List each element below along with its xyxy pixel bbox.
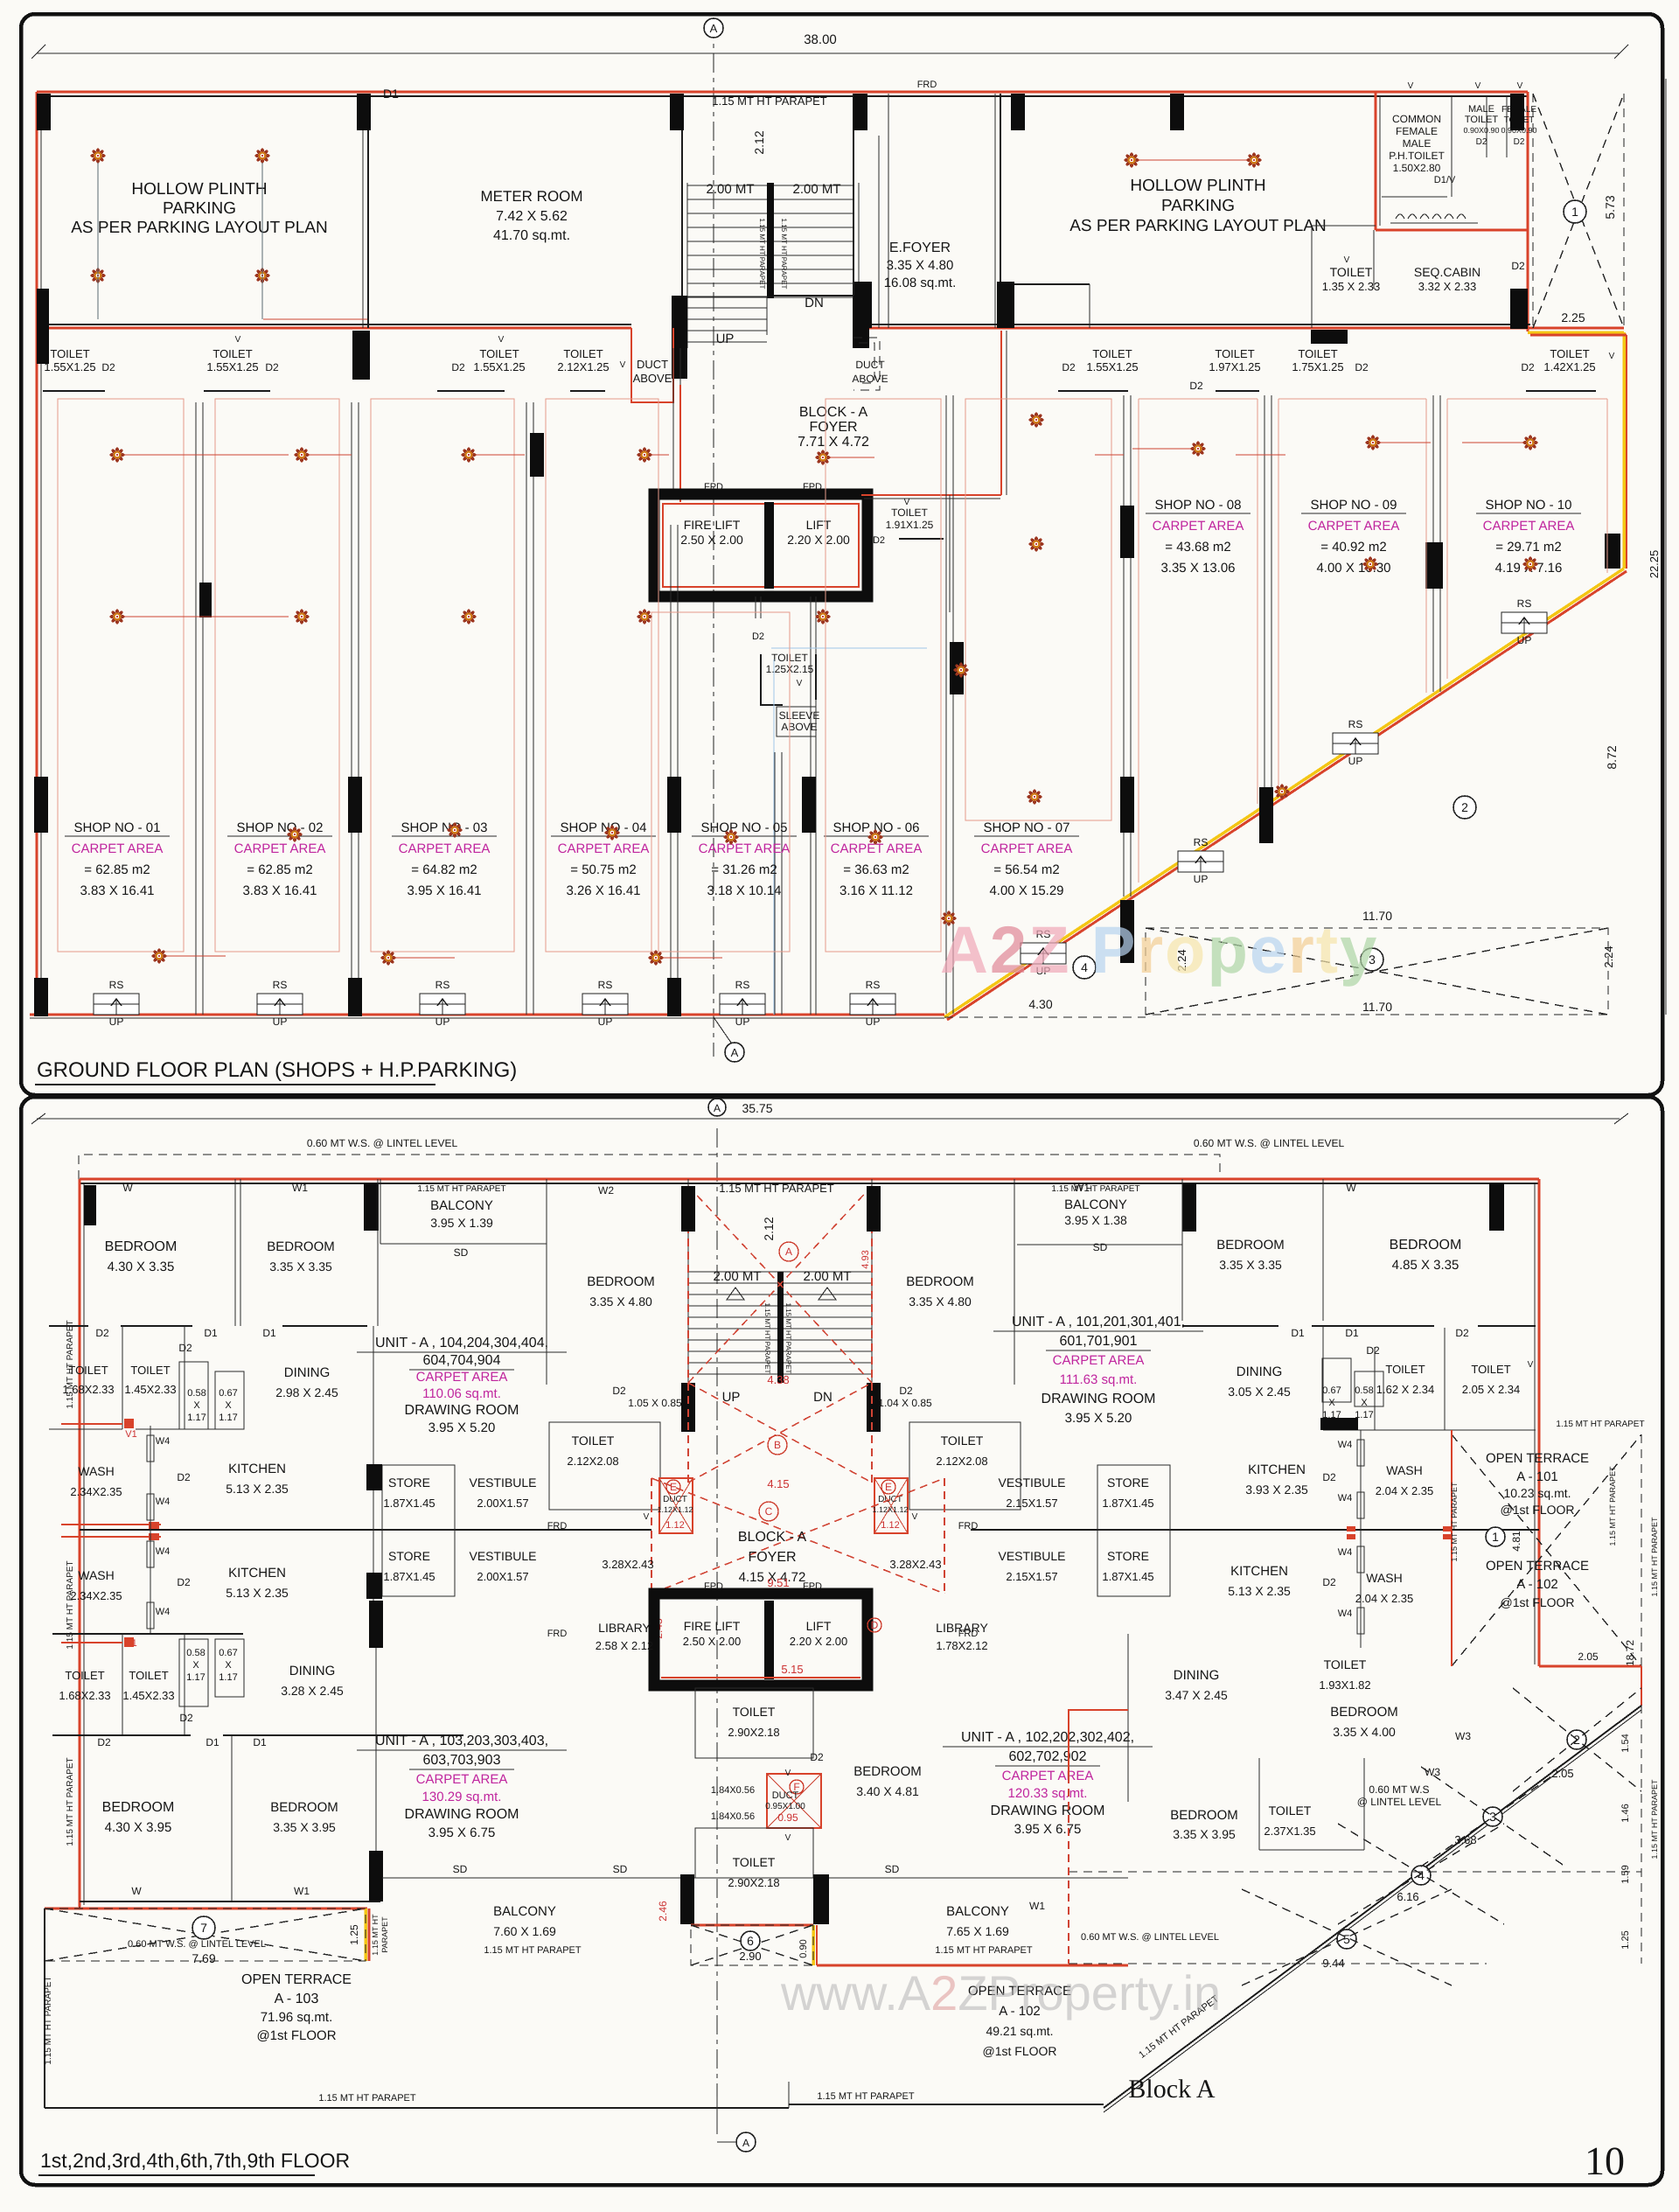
- svg-text:3.35 X 3.35: 3.35 X 3.35: [269, 1260, 332, 1273]
- svg-text:V: V: [1609, 352, 1615, 361]
- svg-text:2.20 X 2.00: 2.20 X 2.00: [787, 533, 850, 547]
- svg-text:1.15 MT HT PARAPET: 1.15 MT HT PARAPET: [712, 94, 827, 108]
- svg-text:D2: D2: [97, 1736, 111, 1748]
- svg-text:W: W: [1346, 1182, 1356, 1194]
- svg-text:AS PER PARKING LAYOUT PLAN: AS PER PARKING LAYOUT PLAN: [71, 219, 328, 237]
- svg-text:3.28X2.43: 3.28X2.43: [889, 1558, 941, 1571]
- svg-text:0.58: 0.58: [187, 1388, 206, 1399]
- svg-text:2.12: 2.12: [762, 1217, 776, 1240]
- svg-text:1.17: 1.17: [186, 1672, 205, 1683]
- svg-text:W2: W2: [598, 1184, 614, 1197]
- svg-text:W1: W1: [292, 1182, 308, 1194]
- svg-text:SLEEVE: SLEEVE: [779, 709, 820, 722]
- svg-text:V: V: [620, 360, 626, 370]
- svg-text:3.32 X 2.33: 3.32 X 2.33: [1418, 280, 1477, 293]
- svg-text:BALCONY: BALCONY: [430, 1198, 493, 1213]
- svg-text:RS: RS: [1194, 836, 1209, 848]
- svg-text:D1: D1: [262, 1327, 276, 1339]
- svg-text:2.24: 2.24: [1602, 946, 1615, 967]
- svg-text:2.00 MT: 2.00 MT: [792, 182, 840, 197]
- svg-text:7: 7: [200, 1921, 207, 1935]
- svg-text:SHOP NO - 09: SHOP NO - 09: [1311, 498, 1397, 513]
- svg-text:FPD: FPD: [704, 1581, 723, 1592]
- svg-text:2.34X2.35: 2.34X2.35: [70, 1589, 122, 1602]
- svg-text:V: V: [235, 335, 241, 345]
- svg-text:2.04 X 2.35: 2.04 X 2.35: [1376, 1484, 1434, 1497]
- svg-text:MALE: MALE: [1468, 104, 1494, 115]
- svg-text:4.38: 4.38: [767, 1373, 789, 1386]
- svg-text:DRAWING ROOM: DRAWING ROOM: [405, 1807, 519, 1822]
- svg-text:2.00 MT: 2.00 MT: [713, 1269, 761, 1284]
- svg-text:SD: SD: [454, 1246, 469, 1259]
- svg-text:1.15 MT HT PARAPET: 1.15 MT HT PARAPET: [758, 219, 766, 290]
- svg-text:PARAPET: PARAPET: [380, 1916, 389, 1953]
- svg-text:7.42 X 5.62: 7.42 X 5.62: [496, 209, 568, 224]
- svg-text:DINING: DINING: [1237, 1364, 1283, 1379]
- svg-text:SHOP NO - 10: SHOP NO - 10: [1486, 498, 1572, 513]
- svg-text:D2: D2: [177, 1471, 191, 1483]
- svg-text:TOILET: TOILET: [1298, 347, 1337, 360]
- svg-text:1.68X2.33: 1.68X2.33: [59, 1689, 110, 1702]
- svg-text:0.60 MT W.S. @ LINTEL LEVEL: 0.60 MT W.S. @ LINTEL LEVEL: [1194, 1137, 1345, 1149]
- svg-text:0.67: 0.67: [219, 1388, 237, 1399]
- svg-text:TOILET: TOILET: [1269, 1804, 1312, 1818]
- svg-text:0.58: 0.58: [186, 1648, 205, 1658]
- svg-text:TOILET: TOILET: [1324, 1657, 1367, 1671]
- svg-text:TOILET: TOILET: [733, 1705, 776, 1719]
- svg-text:RS: RS: [866, 979, 881, 991]
- svg-text:X: X: [192, 1660, 199, 1671]
- svg-text:604,704,904: 604,704,904: [423, 1353, 501, 1368]
- svg-text:CARPET AREA: CARPET AREA: [399, 841, 491, 856]
- svg-text:7.65 X 1.69: 7.65 X 1.69: [946, 1924, 1009, 1938]
- svg-text:D2: D2: [899, 1385, 913, 1397]
- svg-text:@1st FLOOR: @1st FLOOR: [1500, 1503, 1574, 1517]
- svg-text:FEMALE: FEMALE: [1396, 125, 1438, 137]
- svg-text:SHOP NO - 01: SHOP NO - 01: [74, 820, 161, 835]
- svg-text:0.95X1.00: 0.95X1.00: [765, 1802, 805, 1811]
- svg-text:D2: D2: [873, 535, 885, 546]
- svg-text:FOYER: FOYER: [748, 1550, 796, 1565]
- svg-text:W3: W3: [1455, 1730, 1471, 1742]
- svg-text:3.35 X 13.06: 3.35 X 13.06: [1160, 561, 1235, 576]
- svg-text:METER ROOM: METER ROOM: [480, 188, 582, 205]
- svg-text:= 56.54 m2: = 56.54 m2: [993, 862, 1059, 877]
- svg-text:D2: D2: [752, 632, 764, 642]
- svg-text:1.91X1.25: 1.91X1.25: [886, 519, 934, 531]
- svg-text:D2: D2: [1455, 1327, 1469, 1339]
- svg-text:D1: D1: [1291, 1327, 1305, 1339]
- svg-text:1.59: 1.59: [1620, 1865, 1631, 1883]
- svg-text:KITCHEN: KITCHEN: [1230, 1564, 1288, 1579]
- svg-text:BEDROOM: BEDROOM: [906, 1274, 974, 1289]
- svg-text:A - 102: A - 102: [1516, 1577, 1558, 1592]
- svg-text:3.05 X 2.45: 3.05 X 2.45: [1228, 1385, 1291, 1399]
- svg-text:V: V: [1475, 81, 1481, 91]
- svg-text:1.45X2.33: 1.45X2.33: [124, 1383, 176, 1396]
- svg-text:130.29 sq.mt.: 130.29 sq.mt.: [422, 1790, 502, 1804]
- svg-text:1.15 MT HT PARAPET: 1.15 MT HT PARAPET: [484, 1945, 582, 1956]
- svg-text:AS PER PARKING LAYOUT PLAN: AS PER PARKING LAYOUT PLAN: [1069, 217, 1327, 235]
- svg-text:BEDROOM: BEDROOM: [853, 1764, 922, 1779]
- svg-text:V: V: [912, 1512, 918, 1522]
- svg-text:FOYER: FOYER: [809, 420, 857, 435]
- svg-text:2.98 X 2.45: 2.98 X 2.45: [275, 1385, 338, 1399]
- svg-text:D2: D2: [178, 1342, 192, 1354]
- svg-text:KITCHEN: KITCHEN: [228, 1462, 286, 1476]
- svg-text:OPEN TERRACE: OPEN TERRACE: [1486, 1559, 1589, 1574]
- svg-text:W4: W4: [156, 1546, 171, 1557]
- svg-text:D2: D2: [1511, 260, 1525, 272]
- svg-text:@ LINTEL LEVEL: @ LINTEL LEVEL: [1357, 1796, 1442, 1808]
- svg-text:1.15 MT HT PARAPET: 1.15 MT HT PARAPET: [66, 1560, 75, 1649]
- svg-text:10.23 sq.mt.: 10.23 sq.mt.: [1503, 1486, 1571, 1500]
- svg-text:D2: D2: [1062, 361, 1076, 373]
- svg-text:BEDROOM: BEDROOM: [1216, 1238, 1285, 1253]
- svg-text:TOILET: TOILET: [1092, 347, 1132, 360]
- svg-text:ABOVE: ABOVE: [781, 721, 817, 733]
- svg-text:DUCT: DUCT: [637, 358, 668, 371]
- svg-text:W4: W4: [1338, 1608, 1353, 1619]
- svg-text:1.15 MT HT PARAPET: 1.15 MT HT PARAPET: [784, 1303, 792, 1374]
- svg-text:W4: W4: [156, 1607, 171, 1617]
- svg-text:SHOP NO - 02: SHOP NO - 02: [237, 820, 324, 835]
- svg-text:2.50 X 2.00: 2.50 X 2.00: [680, 533, 743, 547]
- svg-text:RS: RS: [598, 979, 613, 991]
- svg-text:STORE: STORE: [1107, 1549, 1149, 1563]
- svg-text:BEDROOM: BEDROOM: [1390, 1238, 1462, 1253]
- svg-text:2.15X1.57: 2.15X1.57: [1006, 1570, 1057, 1583]
- svg-text:UP: UP: [866, 1015, 881, 1028]
- svg-text:1.12X1.12: 1.12X1.12: [872, 1505, 908, 1514]
- svg-text:1.15 MT HT PARAPET: 1.15 MT HT PARAPET: [1650, 1517, 1659, 1597]
- svg-text:2.12X2.08: 2.12X2.08: [936, 1455, 987, 1468]
- svg-text:1.54: 1.54: [1620, 1734, 1631, 1752]
- svg-text:B: B: [774, 1439, 781, 1451]
- svg-text:TOILET: TOILET: [1471, 1363, 1510, 1376]
- svg-text:CARPET AREA: CARPET AREA: [416, 1370, 508, 1385]
- svg-text:STORE: STORE: [388, 1476, 430, 1490]
- svg-text:1.15 MT HT PARAPET: 1.15 MT HT PARAPET: [1051, 1184, 1139, 1194]
- svg-text:= 29.71 m2: = 29.71 m2: [1495, 540, 1561, 555]
- svg-text:3.35 X 3.35: 3.35 X 3.35: [1219, 1258, 1282, 1272]
- svg-text:3.28X2.43: 3.28X2.43: [602, 1558, 653, 1571]
- svg-text:TOILET: TOILET: [212, 347, 252, 360]
- svg-text:1.15 MT HT PARAPET: 1.15 MT HT PARAPET: [817, 2091, 915, 2102]
- svg-text:0.90: 0.90: [798, 1939, 809, 1957]
- svg-text:TOILET: TOILET: [68, 1364, 108, 1377]
- svg-text:1.15 MT HT PARAPET: 1.15 MT HT PARAPET: [66, 1757, 75, 1846]
- svg-text:WASH: WASH: [1386, 1463, 1422, 1477]
- svg-text:DRAWING ROOM: DRAWING ROOM: [1042, 1392, 1156, 1406]
- svg-text:A - 103: A - 103: [275, 1992, 319, 2006]
- svg-text:22.25: 22.25: [1648, 550, 1661, 579]
- svg-text:@1st FLOOR: @1st FLOOR: [982, 2044, 1056, 2058]
- svg-text:DINING: DINING: [289, 1664, 336, 1678]
- svg-text:ABOVE: ABOVE: [852, 373, 888, 385]
- svg-text:CARPET AREA: CARPET AREA: [1002, 1769, 1094, 1783]
- svg-text:@1st FLOOR: @1st FLOOR: [1500, 1595, 1574, 1609]
- svg-text:1.15 MT HT PARAPET: 1.15 MT HT PARAPET: [417, 1184, 505, 1194]
- svg-text:D2: D2: [265, 361, 279, 373]
- svg-text:COMMON: COMMON: [1392, 113, 1441, 125]
- svg-text:HOLLOW PLINTH: HOLLOW PLINTH: [1130, 177, 1265, 195]
- svg-text:OPEN TERRACE: OPEN TERRACE: [241, 1972, 352, 1987]
- svg-text:1.15 MT HT PARAPET: 1.15 MT HT PARAPET: [719, 1182, 834, 1195]
- svg-text:W: W: [122, 1182, 133, 1194]
- svg-text:18.72: 18.72: [1624, 1640, 1636, 1666]
- svg-text:2.15X1.57: 2.15X1.57: [1006, 1497, 1057, 1510]
- svg-text:D: D: [871, 1619, 879, 1631]
- svg-text:1.12X1.12: 1.12X1.12: [657, 1505, 693, 1514]
- svg-text:A - 101: A - 101: [1516, 1469, 1558, 1484]
- svg-text:D2: D2: [1322, 1471, 1336, 1483]
- svg-text:2.25: 2.25: [1561, 311, 1585, 324]
- svg-text:5.13 X 2.35: 5.13 X 2.35: [226, 1586, 289, 1600]
- svg-text:V: V: [785, 1769, 791, 1778]
- svg-text:RS: RS: [109, 979, 124, 991]
- svg-text:2.00 MT: 2.00 MT: [706, 182, 754, 197]
- svg-text:5.13 X 2.35: 5.13 X 2.35: [1228, 1584, 1291, 1598]
- svg-text:1.78X2.12: 1.78X2.12: [936, 1639, 987, 1652]
- svg-text:BEDROOM: BEDROOM: [1170, 1808, 1238, 1823]
- svg-text:WASH: WASH: [78, 1464, 114, 1478]
- svg-text:1.87X1.45: 1.87X1.45: [383, 1497, 435, 1510]
- svg-text:PARKING: PARKING: [163, 199, 236, 218]
- svg-text:A: A: [710, 22, 718, 35]
- svg-text:2.00X1.57: 2.00X1.57: [477, 1570, 528, 1583]
- svg-text:D2: D2: [95, 1327, 109, 1339]
- svg-text:D2: D2: [612, 1385, 626, 1397]
- svg-text:D2: D2: [1355, 361, 1369, 373]
- svg-text:2.90X2.18: 2.90X2.18: [728, 1876, 779, 1889]
- svg-text:RS: RS: [735, 979, 750, 991]
- svg-text:1.84X0.56: 1.84X0.56: [711, 1785, 755, 1796]
- svg-text:UNIT - A , 103,203,303,403,: UNIT - A , 103,203,303,403,: [375, 1734, 548, 1748]
- svg-text:0.58: 0.58: [1355, 1385, 1373, 1396]
- svg-text:V: V: [498, 335, 505, 345]
- svg-text:D2: D2: [1366, 1344, 1380, 1357]
- svg-text:35.75: 35.75: [742, 1101, 772, 1115]
- svg-text:CARPET AREA: CARPET AREA: [416, 1772, 508, 1787]
- svg-text:49.21 sq.mt.: 49.21 sq.mt.: [986, 2024, 1053, 2038]
- svg-text:2.90X2.18: 2.90X2.18: [728, 1726, 779, 1739]
- svg-text:3: 3: [1489, 1810, 1496, 1824]
- svg-text:= 50.75 m2: = 50.75 m2: [570, 862, 636, 877]
- svg-text:0.95: 0.95: [777, 1811, 798, 1824]
- svg-text:TOILET: TOILET: [129, 1669, 168, 1682]
- svg-text:3.95 X 6.75: 3.95 X 6.75: [428, 1825, 496, 1840]
- svg-text:DUCT: DUCT: [663, 1495, 687, 1504]
- svg-text:0.60 MT W.S. @ LINTEL LEVEL: 0.60 MT W.S. @ LINTEL LEVEL: [307, 1137, 458, 1149]
- svg-text:2: 2: [1461, 800, 1468, 814]
- svg-text:Block A: Block A: [1128, 2075, 1216, 2104]
- svg-text:SEQ.CABIN: SEQ.CABIN: [1414, 265, 1480, 279]
- svg-text:3.83 X 16.41: 3.83 X 16.41: [80, 883, 154, 898]
- svg-text:4.30 X 3.35: 4.30 X 3.35: [108, 1260, 175, 1274]
- svg-text:1.84X0.56: 1.84X0.56: [711, 1811, 755, 1822]
- svg-text:TOILET: TOILET: [1550, 347, 1589, 360]
- svg-text:4.30: 4.30: [1028, 997, 1052, 1011]
- svg-text:1.05 X 0.85: 1.05 X 0.85: [628, 1397, 682, 1409]
- svg-text:D2: D2: [1476, 137, 1487, 147]
- svg-text:V: V: [904, 498, 910, 507]
- svg-text:D1: D1: [1345, 1327, 1359, 1339]
- svg-text:9.51: 9.51: [767, 1576, 789, 1589]
- svg-text:ABOVE: ABOVE: [633, 372, 672, 385]
- svg-text:1.62 X 2.34: 1.62 X 2.34: [1376, 1383, 1435, 1396]
- svg-text:WASH: WASH: [78, 1568, 114, 1582]
- svg-text:1.55X1.25: 1.55X1.25: [206, 360, 258, 373]
- svg-text:RS: RS: [435, 979, 450, 991]
- svg-text:A2Z Property: A2Z Property: [940, 913, 1378, 987]
- svg-text:= 62.85 m2: = 62.85 m2: [247, 862, 312, 877]
- svg-text:TOILET: TOILET: [891, 506, 928, 519]
- svg-text:UNIT - A , 102,202,302,402,: UNIT - A , 102,202,302,402,: [961, 1730, 1134, 1745]
- svg-text:D2: D2: [177, 1576, 191, 1588]
- svg-text:3.95 X 1.39: 3.95 X 1.39: [430, 1216, 493, 1230]
- svg-text:SHOP NO - 04: SHOP NO - 04: [561, 820, 647, 835]
- svg-text:D1: D1: [253, 1736, 267, 1748]
- svg-text:= 36.63 m2: = 36.63 m2: [843, 862, 909, 877]
- svg-text:SD: SD: [1093, 1241, 1108, 1253]
- svg-text:UP: UP: [1517, 634, 1532, 646]
- svg-text:602,702,902: 602,702,902: [1009, 1749, 1087, 1764]
- svg-text:3.40 X 4.81: 3.40 X 4.81: [856, 1784, 919, 1798]
- svg-text:E: E: [670, 1481, 677, 1493]
- svg-text:110.06 sq.mt.: 110.06 sq.mt.: [422, 1386, 501, 1401]
- svg-text:1.55X1.25: 1.55X1.25: [1086, 360, 1138, 373]
- svg-text:LIBRARY: LIBRARY: [936, 1621, 988, 1635]
- svg-text:1.45X2.33: 1.45X2.33: [122, 1689, 174, 1702]
- svg-text:3.35 X 3.95: 3.35 X 3.95: [273, 1820, 336, 1834]
- svg-text:1: 1: [1492, 1530, 1499, 1544]
- svg-text:V: V: [1344, 255, 1350, 265]
- svg-text:V1: V1: [125, 1429, 136, 1440]
- svg-text:3.95 X 1.38: 3.95 X 1.38: [1064, 1213, 1127, 1227]
- svg-text:2.12X2.08: 2.12X2.08: [567, 1455, 618, 1468]
- svg-text:W3: W3: [1425, 1766, 1440, 1778]
- svg-text:4.85 X 3.35: 4.85 X 3.35: [1392, 1258, 1460, 1273]
- svg-text:0.67: 0.67: [219, 1648, 237, 1658]
- svg-text:3.35 X 4.80: 3.35 X 4.80: [589, 1294, 652, 1308]
- svg-text:X: X: [225, 1400, 232, 1411]
- svg-text:2.90: 2.90: [739, 1950, 761, 1963]
- svg-text:www.A2ZProperty.in: www.A2ZProperty.in: [780, 1965, 1221, 2020]
- svg-text:CARPET AREA: CARPET AREA: [1153, 519, 1244, 534]
- svg-text:1.15 MT HT PARAPET: 1.15 MT HT PARAPET: [318, 2093, 416, 2104]
- svg-text:= 40.92 m2: = 40.92 m2: [1320, 540, 1386, 555]
- svg-text:A: A: [714, 1102, 721, 1114]
- svg-text:CARPET AREA: CARPET AREA: [1483, 519, 1575, 534]
- svg-text:FRD: FRD: [958, 1521, 979, 1532]
- svg-text:3.47 X 2.45: 3.47 X 2.45: [1165, 1688, 1228, 1702]
- svg-text:120.33 sq.mt.: 120.33 sq.mt.: [1008, 1786, 1088, 1801]
- svg-text:FPD: FPD: [803, 1581, 822, 1592]
- svg-text:UP: UP: [1348, 755, 1363, 767]
- svg-text:D1: D1: [383, 87, 399, 101]
- svg-text:VESTIBULE: VESTIBULE: [998, 1549, 1065, 1563]
- svg-text:5.15: 5.15: [781, 1663, 803, 1676]
- svg-text:STORE: STORE: [388, 1549, 430, 1563]
- svg-text:7.69: 7.69: [192, 1951, 215, 1965]
- svg-text:HOLLOW PLINTH: HOLLOW PLINTH: [131, 180, 267, 199]
- svg-text:1.17: 1.17: [187, 1413, 206, 1423]
- svg-text:CARPET AREA: CARPET AREA: [558, 841, 650, 856]
- svg-text:2.12X1.25: 2.12X1.25: [557, 360, 609, 373]
- svg-text:UP: UP: [435, 1015, 450, 1028]
- svg-text:5.73: 5.73: [1603, 195, 1617, 219]
- svg-text:1.12: 1.12: [665, 1520, 684, 1531]
- svg-text:6.16: 6.16: [1397, 1890, 1418, 1903]
- svg-text:2.00X1.57: 2.00X1.57: [477, 1497, 528, 1510]
- svg-text:CARPET AREA: CARPET AREA: [1308, 519, 1400, 534]
- svg-text:2.00 MT: 2.00 MT: [803, 1269, 851, 1284]
- svg-text:2.20 X 2.00: 2.20 X 2.00: [790, 1635, 848, 1648]
- svg-text:SHOP NO - 08: SHOP NO - 08: [1155, 498, 1242, 513]
- svg-text:D2: D2: [810, 1751, 824, 1763]
- svg-text:0.90X0.90: 0.90X0.90: [1463, 126, 1499, 135]
- svg-text:7.71 X 4.72: 7.71 X 4.72: [798, 435, 869, 450]
- svg-text:D2: D2: [451, 361, 465, 373]
- svg-text:TOILET: TOILET: [130, 1364, 170, 1377]
- svg-text:FIRE LIFT: FIRE LIFT: [684, 518, 741, 532]
- svg-text:BALCONY: BALCONY: [946, 1904, 1009, 1919]
- svg-text:W1: W1: [1074, 1182, 1090, 1194]
- svg-text:1.17: 1.17: [219, 1413, 237, 1423]
- svg-text:1st,2nd,3rd,4th,6th,7th,9th FL: 1st,2nd,3rd,4th,6th,7th,9th FLOOR: [40, 2149, 350, 2172]
- svg-text:DRAWING ROOM: DRAWING ROOM: [991, 1804, 1105, 1818]
- svg-text:TOILET: TOILET: [733, 1855, 776, 1869]
- svg-text:BEDROOM: BEDROOM: [105, 1239, 178, 1254]
- svg-text:D2: D2: [1521, 361, 1535, 373]
- svg-text:= 62.85 m2: = 62.85 m2: [84, 862, 150, 877]
- svg-text:E: E: [885, 1481, 892, 1493]
- svg-text:KITCHEN: KITCHEN: [228, 1566, 286, 1580]
- svg-text:1.68X2.33: 1.68X2.33: [62, 1383, 114, 1396]
- svg-text:1.15 MT HT PARAPET: 1.15 MT HT PARAPET: [763, 1303, 771, 1374]
- svg-text:UP: UP: [716, 331, 735, 346]
- svg-text:3.68: 3.68: [1454, 1833, 1476, 1846]
- svg-text:4.93: 4.93: [860, 1250, 871, 1268]
- svg-text:OPEN TERRACE: OPEN TERRACE: [1486, 1451, 1589, 1466]
- svg-text:3.28 X 2.45: 3.28 X 2.45: [281, 1684, 344, 1698]
- svg-text:2.46: 2.46: [657, 1901, 669, 1922]
- svg-text:1.15 MT HT PARAPET: 1.15 MT HT PARAPET: [1556, 1420, 1644, 1429]
- svg-text:4.30 X 3.95: 4.30 X 3.95: [105, 1820, 172, 1835]
- svg-text:GROUND FLOOR PLAN (SHOPS + H.P: GROUND FLOOR PLAN (SHOPS + H.P.PARKING): [37, 1058, 517, 1082]
- svg-text:DUCT: DUCT: [855, 359, 885, 371]
- svg-text:BEDROOM: BEDROOM: [587, 1274, 655, 1289]
- svg-text:RS: RS: [273, 979, 288, 991]
- svg-text:CARPET AREA: CARPET AREA: [699, 841, 791, 856]
- svg-text:SD: SD: [453, 1863, 468, 1875]
- svg-text:SHOP NO - 03: SHOP NO - 03: [401, 820, 488, 835]
- svg-text:TOILET: TOILET: [1215, 347, 1254, 360]
- svg-text:FPD: FPD: [803, 482, 822, 492]
- svg-text:W4: W4: [1338, 1547, 1353, 1558]
- svg-text:1.87X1.45: 1.87X1.45: [1102, 1497, 1153, 1510]
- svg-text:1.55X1.25: 1.55X1.25: [44, 360, 95, 373]
- svg-text:UP: UP: [1194, 873, 1209, 885]
- svg-text:0.60 MT W.S. @ LINTEL LEVEL: 0.60 MT W.S. @ LINTEL LEVEL: [1081, 1932, 1219, 1943]
- svg-text:3.35 X 4.80: 3.35 X 4.80: [909, 1294, 972, 1308]
- svg-text:3.35 X 3.95: 3.35 X 3.95: [1173, 1827, 1236, 1841]
- svg-text:BEDROOM: BEDROOM: [270, 1800, 338, 1815]
- svg-text:A: A: [785, 1246, 792, 1258]
- svg-text:LIFT: LIFT: [806, 1619, 832, 1633]
- svg-text:TOILET: TOILET: [65, 1669, 104, 1682]
